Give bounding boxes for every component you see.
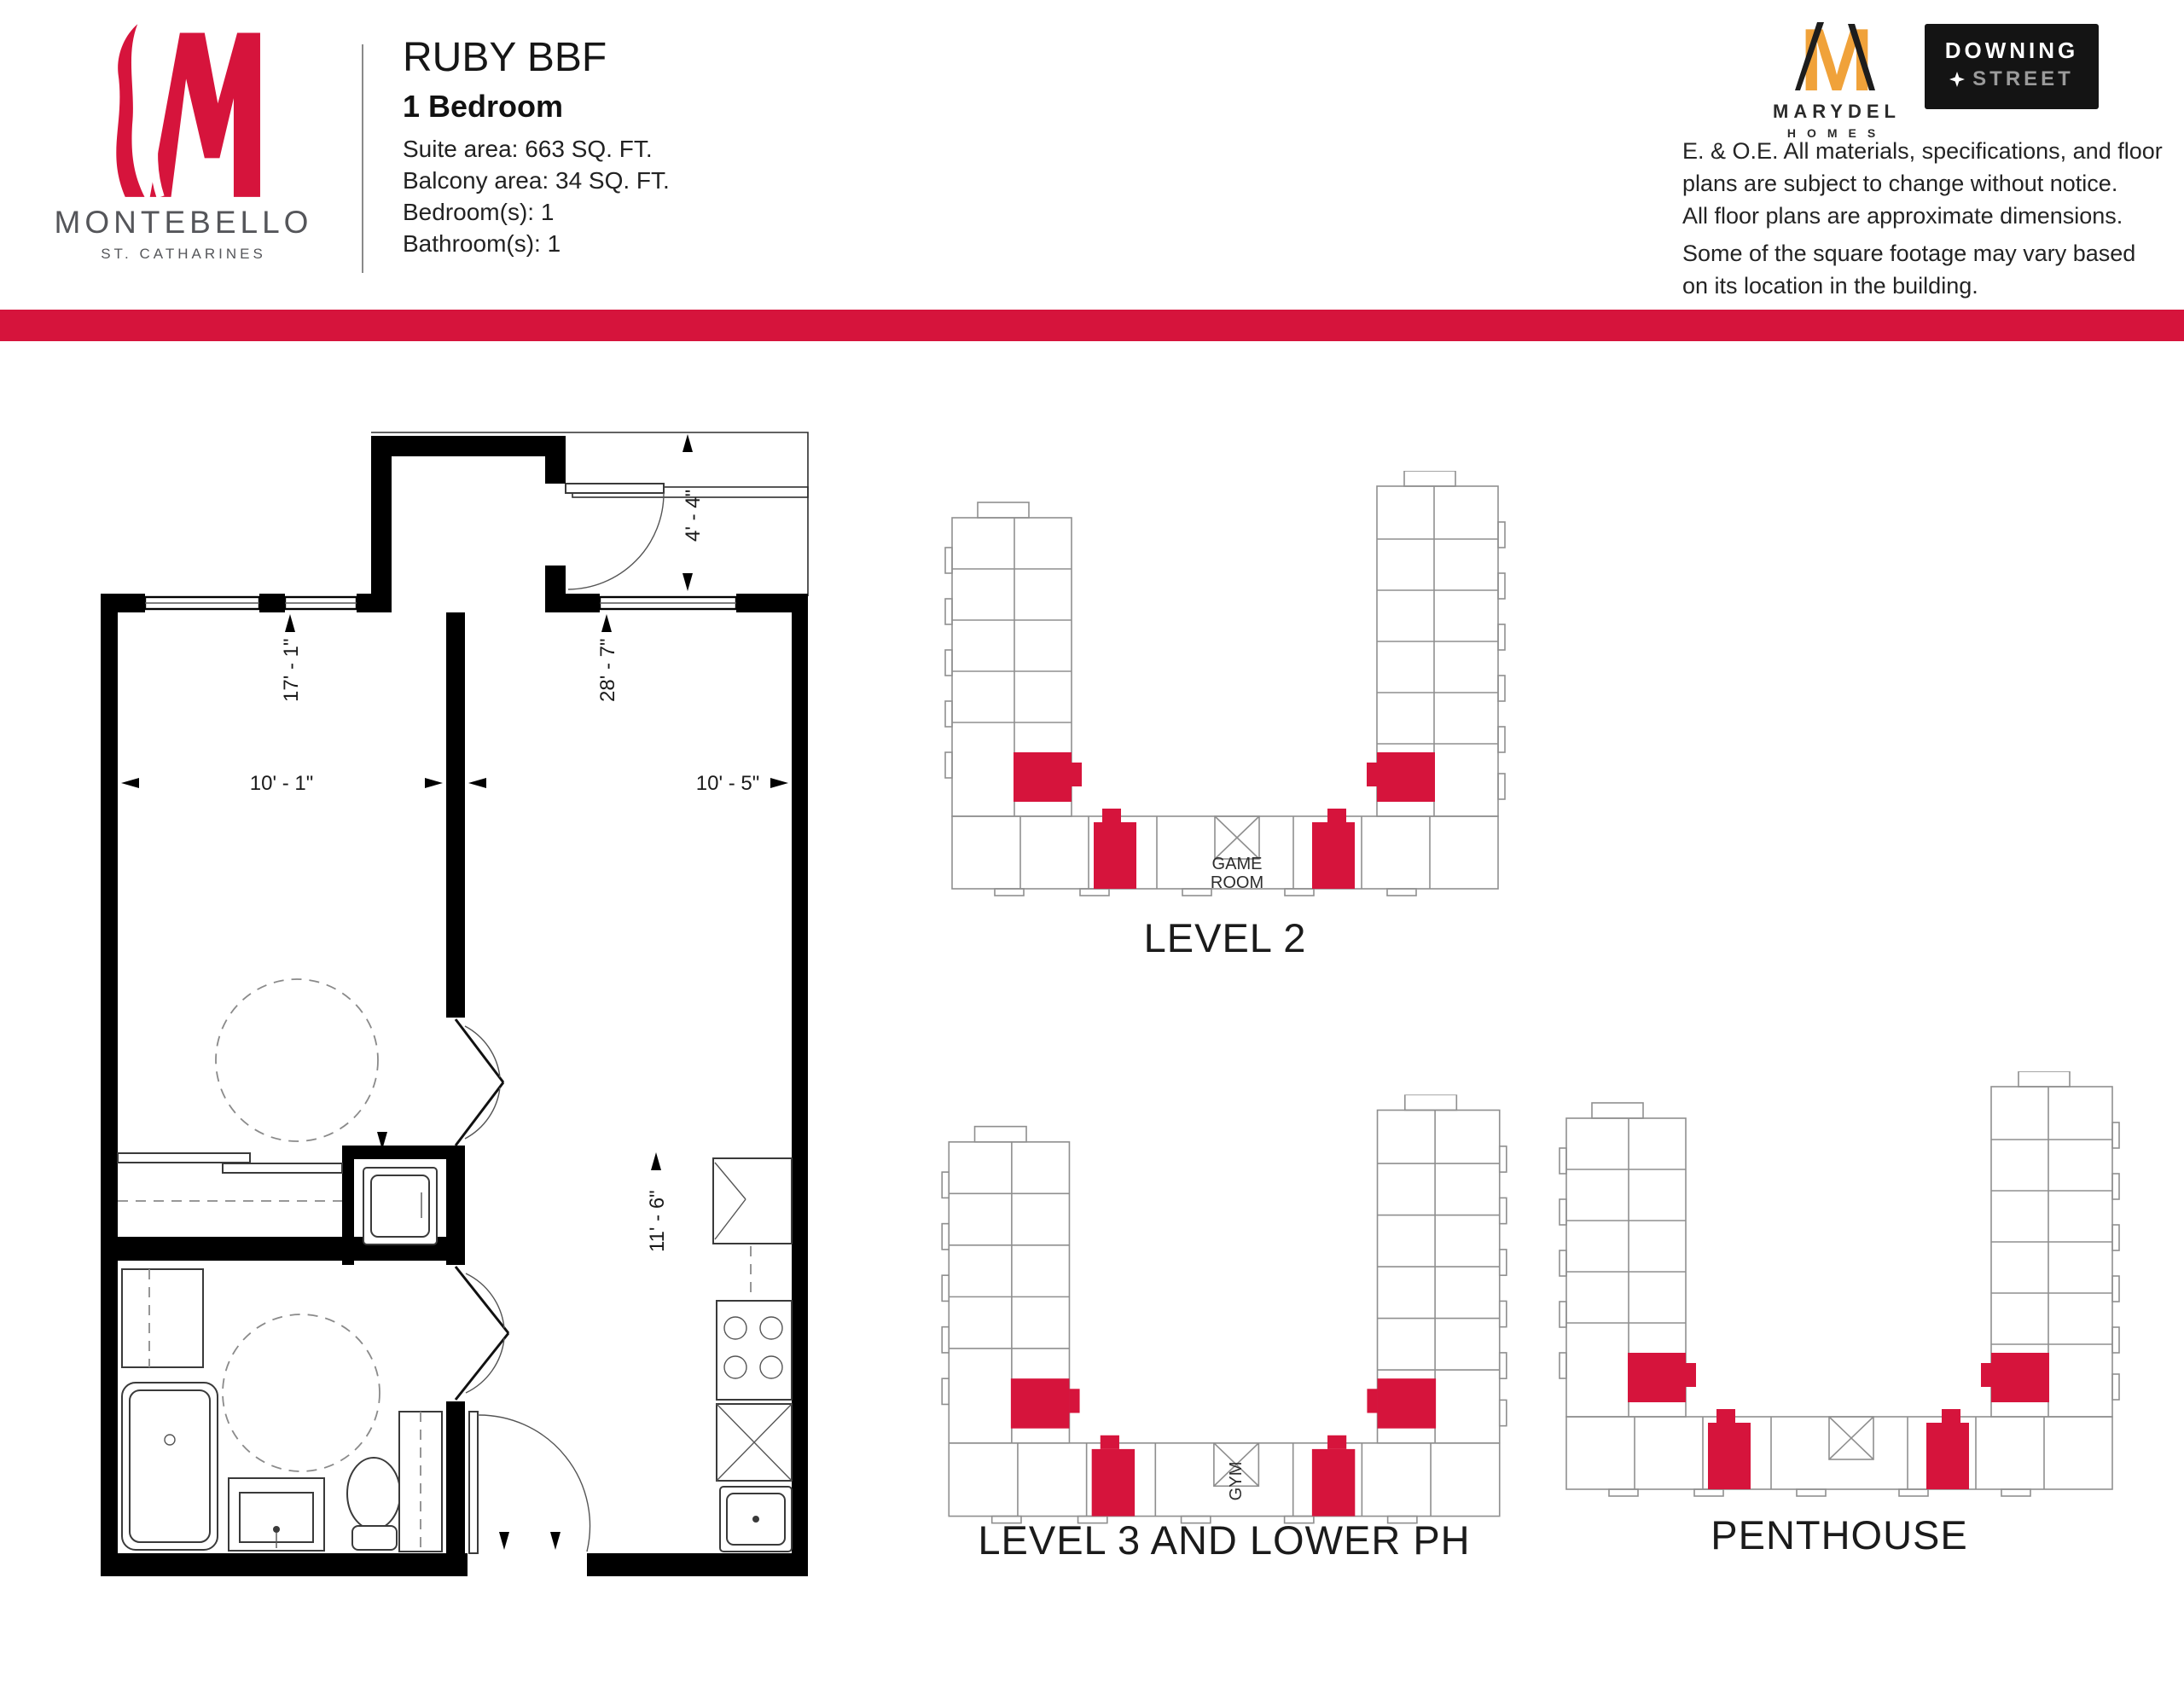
bedroom-door: [456, 1019, 503, 1146]
downing-line1: DOWNING: [1925, 38, 2099, 64]
game-room-label-2: ROOM: [1211, 873, 1263, 892]
plan-balcony-area: Balcony area: 34 SQ. FT.: [403, 165, 670, 196]
hall-closet: [399, 1412, 442, 1552]
shower-closet: [363, 1168, 437, 1244]
gym-label: GYM: [1227, 1461, 1246, 1500]
left-wall: [101, 594, 118, 1576]
dimension-living-width: 10' - 5": [468, 772, 788, 795]
red-divider-bar: [0, 310, 2184, 341]
downing-street-logo: DOWNING STREET: [1925, 24, 2099, 109]
plan-subtitle: 1 Bedroom: [403, 89, 563, 125]
disclaimer-paragraph-1: E. & O.E. All materials, specifications,…: [1682, 135, 2169, 232]
kitchen: [713, 1158, 792, 1552]
project-name: MONTEBELLO: [43, 205, 324, 241]
fridge: [713, 1158, 792, 1244]
caption-penthouse: PENTHOUSE: [1541, 1511, 2138, 1558]
svg-text:11' - 6": 11' - 6": [646, 1190, 669, 1252]
plan-bathrooms: Bathroom(s): 1: [403, 228, 561, 259]
montebello-logo: [90, 19, 277, 200]
dimension-suite-length: 28' - 7": [499, 614, 619, 1550]
toilet: [347, 1458, 400, 1529]
bathroom: [122, 1269, 400, 1551]
bathroom-turning-circle: [223, 1314, 380, 1471]
balcony: [371, 432, 808, 596]
plan-title: RUBY BBF: [403, 34, 607, 81]
entry-door: [469, 1412, 590, 1553]
key-plan-level-2: GAME ROOM: [926, 471, 1524, 897]
project-location: ST. CATHARINES: [43, 246, 324, 263]
game-room-label-1: GAME: [1212, 855, 1263, 873]
dimension-kitchen-length: 11' - 6": [550, 1152, 669, 1550]
header-divider: [362, 44, 363, 273]
logo-swoosh: [116, 24, 144, 197]
downing-line2: STREET: [1972, 67, 2074, 91]
marydel-logo: M: [1773, 14, 1901, 99]
bedroom-turning-circle: [216, 979, 378, 1141]
svg-text:10' - 1": 10' - 1": [250, 772, 313, 795]
plan-suite-area: Suite area: 663 SQ. FT.: [403, 133, 653, 165]
disclaimer-paragraph-2: Some of the square footage may vary base…: [1682, 237, 2169, 302]
dimension-bedroom-width: 10' - 1": [121, 772, 443, 795]
balcony-alcove-walls: [371, 436, 566, 612]
dimension-balcony-depth: 4' - 4": [682, 434, 705, 591]
marydel-name: MARYDEL: [1756, 101, 1918, 123]
cooktop: [717, 1301, 792, 1400]
linen-cabinet: [122, 1269, 203, 1367]
svg-text:4' - 4": 4' - 4": [682, 490, 705, 542]
right-wall: [792, 596, 808, 1576]
bedroom-closet: [118, 1153, 342, 1201]
bottom-wall-left: [101, 1553, 468, 1576]
downing-star-icon: [1949, 72, 1965, 87]
floor-plan-sheet: MONTEBELLO ST. CATHARINES RUBY BBF 1 Bed…: [0, 0, 2184, 1688]
dimension-bedroom-length: 17' - 1": [280, 614, 387, 1150]
unit-floor-plan: 4' - 4" 17' - 1" 28' - 7" 10' - 1" 10' -…: [101, 429, 809, 1576]
logo-m: [150, 33, 260, 197]
top-wall: [101, 594, 808, 612]
caption-level-3: LEVEL 3 AND LOWER PH: [923, 1517, 1525, 1563]
svg-text:10' - 5": 10' - 5": [696, 772, 759, 795]
svg-text:28' - 7": 28' - 7": [596, 639, 619, 702]
bathroom-door: [456, 1267, 508, 1400]
svg-text:17' - 1": 17' - 1": [280, 639, 303, 702]
bottom-wall-right: [587, 1553, 808, 1576]
plan-bedrooms: Bedroom(s): 1: [403, 196, 554, 228]
caption-level-2: LEVEL 2: [926, 914, 1524, 961]
key-plan-level-3: GYM: [923, 1094, 1525, 1525]
key-plan-penthouse: [1541, 1071, 2138, 1498]
